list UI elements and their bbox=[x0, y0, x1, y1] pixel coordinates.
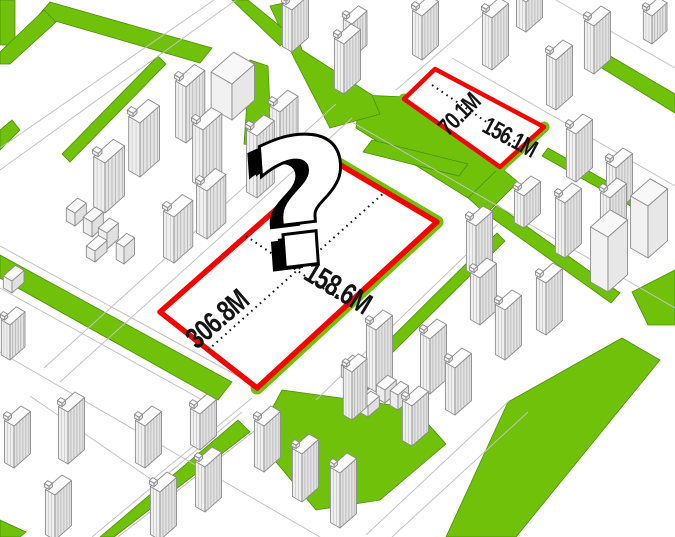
building-tower bbox=[494, 290, 521, 360]
building-left-face bbox=[45, 490, 55, 537]
building-tower bbox=[444, 348, 471, 415]
building-left-face bbox=[334, 39, 344, 95]
building-tower bbox=[329, 453, 356, 528]
building-left-face bbox=[176, 81, 186, 143]
building-tower bbox=[149, 472, 176, 537]
building-tower bbox=[127, 99, 159, 177]
question-mark-icon: ? ? ? bbox=[233, 98, 360, 317]
building-tower bbox=[554, 183, 581, 258]
road-edge-line bbox=[30, 396, 152, 480]
building-left-face bbox=[58, 407, 68, 465]
building-left-face bbox=[366, 325, 376, 393]
building-left-face bbox=[584, 21, 594, 75]
building-tower bbox=[515, 0, 542, 32]
building-left-face bbox=[470, 273, 480, 326]
building-left-face bbox=[292, 449, 302, 503]
building-left-face bbox=[190, 409, 200, 451]
building-tower bbox=[419, 319, 446, 394]
building-left-face bbox=[343, 367, 352, 420]
green-area bbox=[0, 0, 15, 45]
building-lowrise bbox=[86, 235, 107, 262]
building-tower bbox=[281, 0, 308, 52]
building-tower bbox=[194, 447, 221, 512]
building-lowrise bbox=[116, 233, 134, 264]
building-left-face bbox=[420, 334, 430, 395]
building-left-face bbox=[591, 227, 608, 292]
building-left-face bbox=[4, 421, 14, 469]
city-site-plan: 306.8M 158.6M 70.1M 156.1M ? ? ? bbox=[0, 0, 675, 537]
building-left-face bbox=[445, 363, 455, 416]
building-tower bbox=[545, 40, 572, 110]
building-tower bbox=[196, 169, 226, 240]
building-left-face bbox=[566, 129, 576, 183]
building-left-face bbox=[164, 211, 174, 263]
building-tower bbox=[469, 258, 496, 325]
building-tower bbox=[535, 263, 562, 335]
building-left-face bbox=[402, 401, 412, 447]
building-left-face bbox=[555, 198, 565, 259]
building-left-face bbox=[135, 421, 145, 469]
building-left-face bbox=[516, 0, 526, 32]
building-tower bbox=[342, 354, 367, 420]
building-box bbox=[591, 210, 628, 292]
building-left-face bbox=[495, 305, 505, 361]
building-tower bbox=[57, 392, 84, 464]
green-area bbox=[632, 270, 675, 325]
building-tower bbox=[513, 176, 540, 228]
building-left-face bbox=[254, 421, 264, 473]
building-box bbox=[631, 179, 668, 258]
building-left-face bbox=[94, 157, 105, 214]
question-mark-face: ? bbox=[246, 98, 359, 311]
building-right-face bbox=[526, 0, 543, 32]
building-tower bbox=[3, 406, 30, 468]
building-left-face bbox=[282, 5, 292, 53]
building-tower bbox=[44, 475, 71, 537]
green-area bbox=[0, 520, 26, 537]
building-tower bbox=[0, 307, 25, 360]
building-left-face bbox=[631, 196, 648, 258]
building-left-face bbox=[412, 11, 422, 61]
building-tower bbox=[163, 195, 193, 264]
building-left-face bbox=[330, 468, 340, 529]
building-left-face bbox=[546, 55, 556, 111]
building-left-face bbox=[482, 13, 492, 71]
building-left-face bbox=[1, 320, 10, 360]
green-area bbox=[38, 2, 212, 63]
building-tower bbox=[333, 24, 360, 94]
building-tower bbox=[134, 406, 161, 468]
building-left-face bbox=[150, 487, 160, 537]
building-left-face bbox=[195, 462, 205, 513]
building-tower bbox=[642, 0, 667, 44]
building-tower bbox=[92, 139, 124, 213]
building-left-face bbox=[643, 11, 652, 44]
building-tower bbox=[481, 0, 508, 70]
building-left-face bbox=[129, 117, 140, 178]
building-left-face bbox=[514, 191, 524, 229]
building-left-face bbox=[536, 278, 546, 336]
building-tower bbox=[411, 0, 438, 60]
building-left-face bbox=[197, 185, 207, 239]
green-area bbox=[446, 338, 660, 537]
